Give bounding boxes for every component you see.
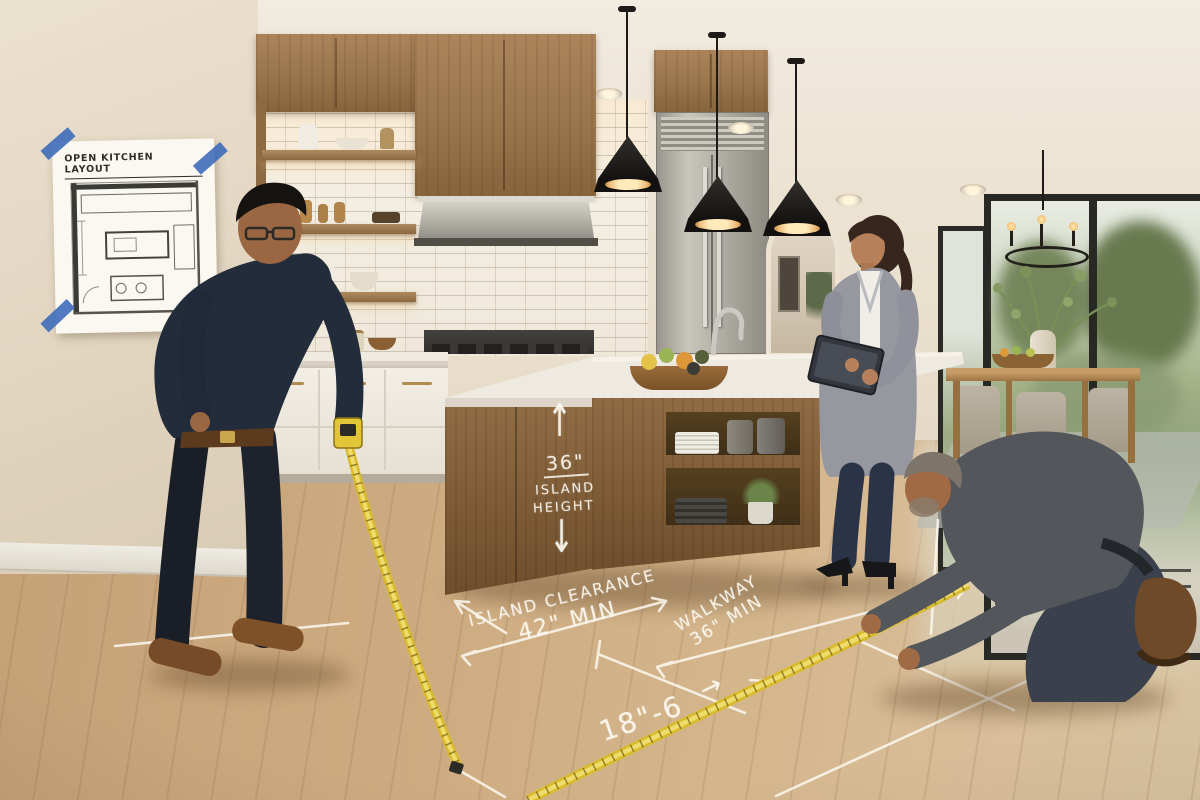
contractor-left-leg-front <box>258 438 265 630</box>
pendant-cord-3 <box>795 62 797 182</box>
kitchen-measuring-scene: OPEN KITCHEN LAYOUT <box>0 0 1200 800</box>
pendant-bulb-2 <box>695 219 741 230</box>
contractor-kneeling-boot <box>1135 578 1197 662</box>
contractor-left-leg-back <box>172 442 192 642</box>
contractor-kneeling-hand-left <box>861 614 881 634</box>
contractor-kneeling-arm-right <box>914 603 1022 657</box>
contractor-kneeling-hand-right <box>898 648 920 670</box>
pendant-bulb-1 <box>605 179 651 190</box>
pendant-cord-2 <box>716 36 718 178</box>
pendant-bulb-3 <box>774 223 820 234</box>
contractor-kneeling <box>850 415 1200 725</box>
recessed-light-1 <box>596 88 622 100</box>
contractor-left-arm-extended <box>320 286 350 422</box>
contractor-kneeling-arm-left <box>876 567 970 621</box>
pendant-cord-1 <box>626 10 628 138</box>
contractor-left-arm-hanging <box>192 302 201 412</box>
contractor-left <box>140 170 380 710</box>
recessed-light-4 <box>960 184 986 196</box>
recessed-light-3 <box>836 194 862 206</box>
recessed-light-2 <box>728 122 754 134</box>
contractor-kneeling-beard <box>909 497 939 517</box>
